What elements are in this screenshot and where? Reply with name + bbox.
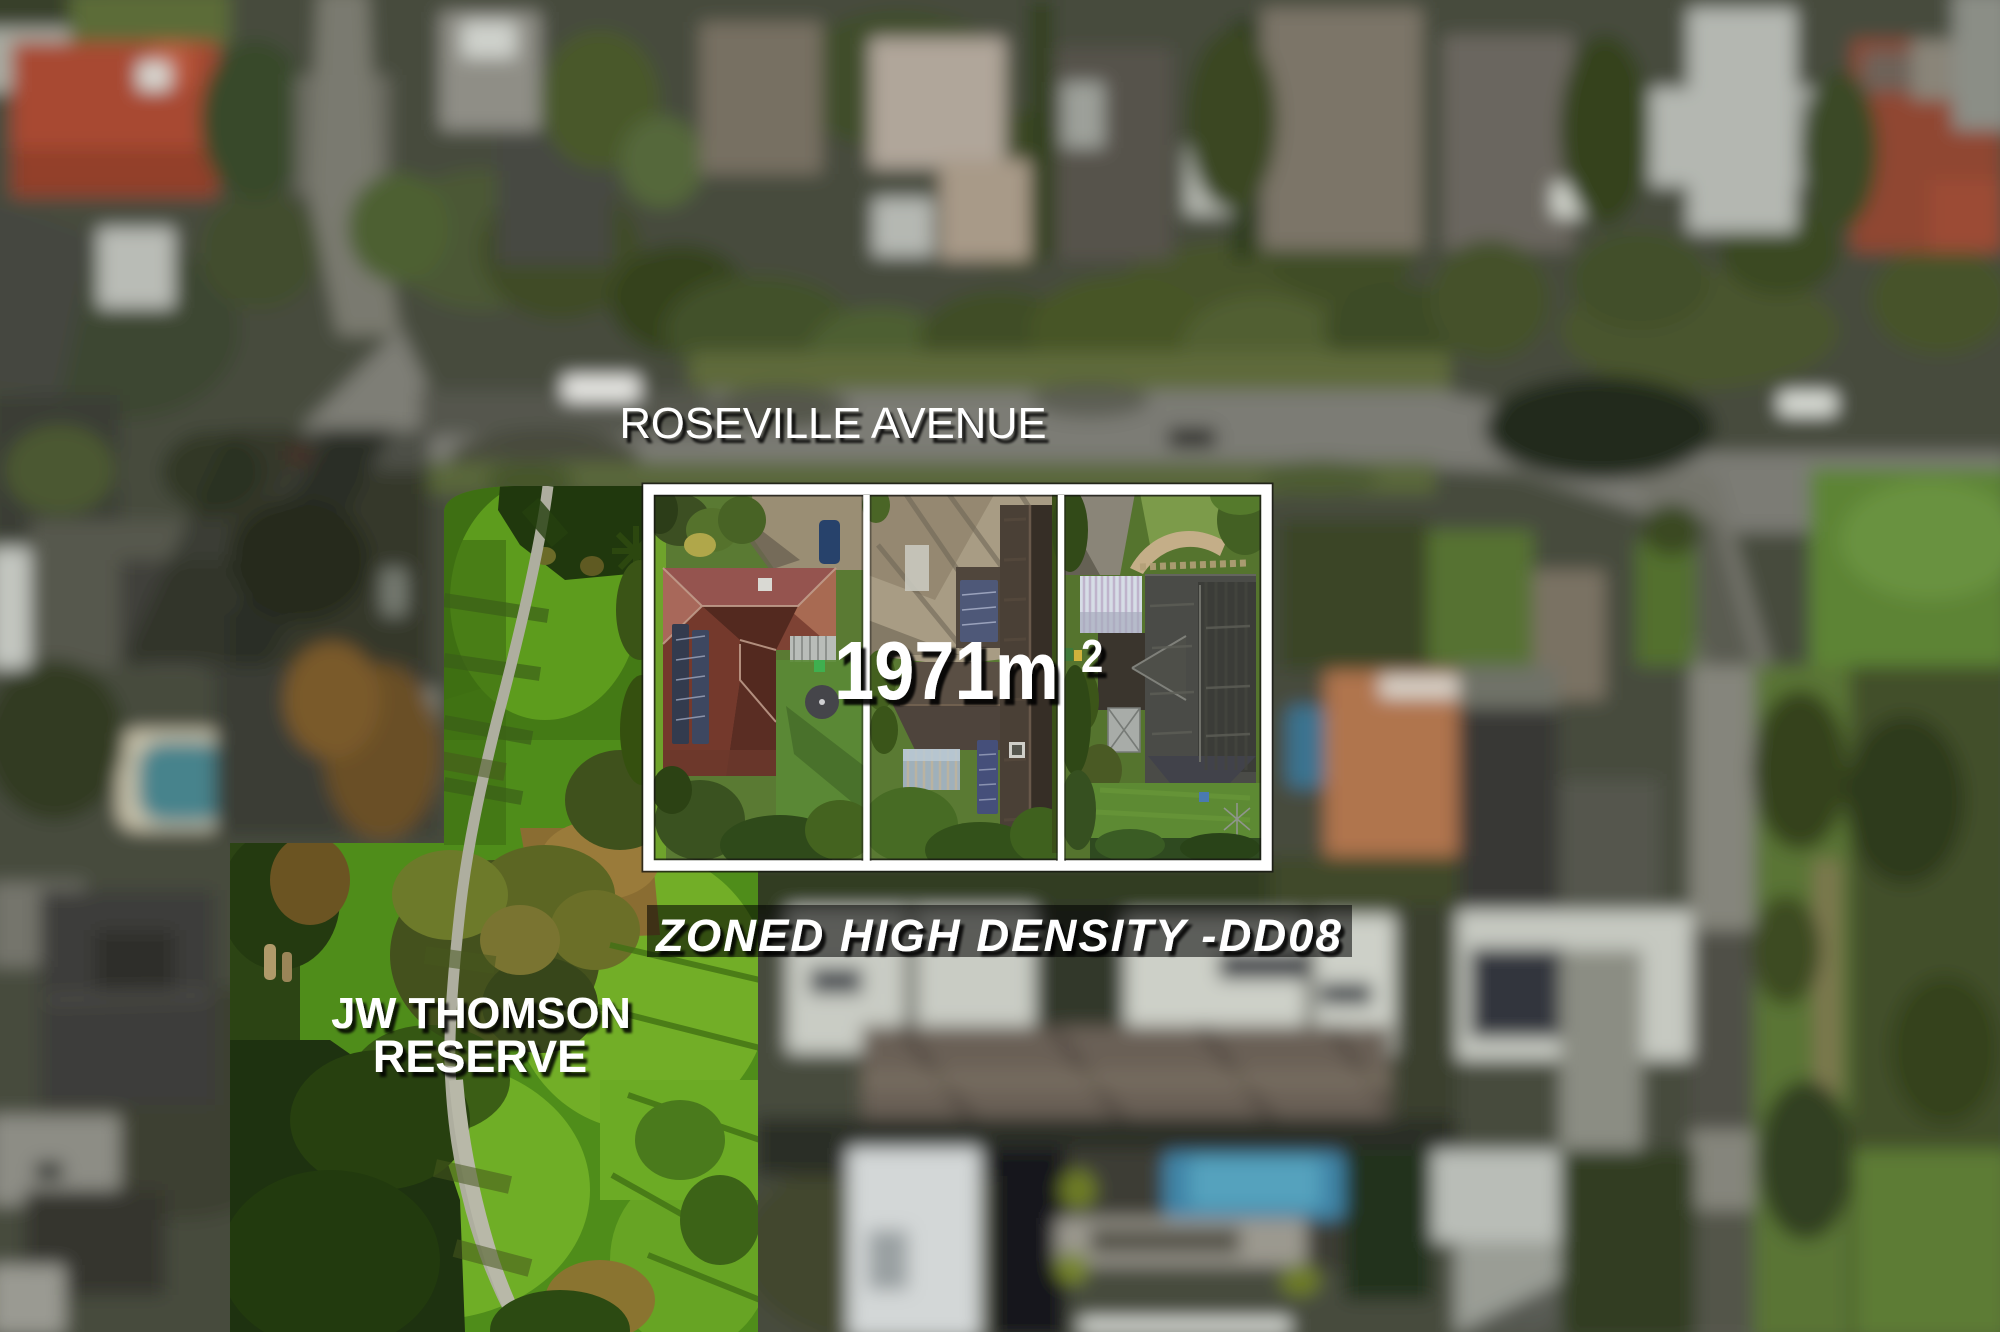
svg-text:RESERVE: RESERVE xyxy=(373,1031,587,1082)
svg-text:2: 2 xyxy=(1081,631,1103,682)
svg-text:ZONED HIGH DENSITY -DD08: ZONED HIGH DENSITY -DD08 xyxy=(654,910,1343,961)
svg-text:ROSEVILLE AVENUE: ROSEVILLE AVENUE xyxy=(619,400,1046,448)
svg-text:1971m: 1971m xyxy=(834,625,1059,717)
